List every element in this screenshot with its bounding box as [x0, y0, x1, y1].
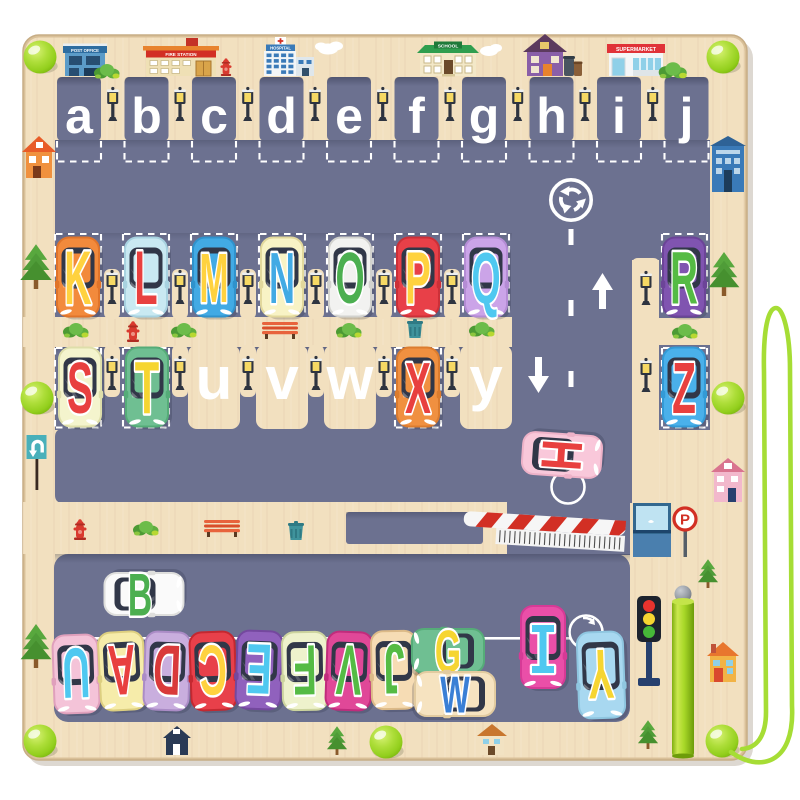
svg-text:d: d [266, 88, 297, 144]
svg-text:Y: Y [586, 633, 615, 712]
svg-text:f: f [408, 88, 425, 144]
svg-text:X: X [405, 349, 431, 429]
svg-text:a: a [65, 88, 94, 144]
svg-text:w: w [326, 345, 374, 412]
svg-text:v: v [265, 345, 299, 412]
svg-text:b: b [131, 88, 162, 144]
svg-text:H: H [529, 438, 595, 473]
svg-text:SCHOOL: SCHOOL [438, 44, 459, 50]
svg-text:F: F [293, 629, 318, 709]
svg-text:R: R [670, 238, 698, 320]
svg-text:P: P [680, 512, 690, 529]
svg-text:e: e [335, 88, 363, 144]
svg-text:j: j [679, 88, 694, 144]
svg-text:C: C [198, 629, 228, 710]
svg-text:HOSPITAL: HOSPITAL [270, 46, 291, 51]
svg-text:S: S [67, 349, 93, 429]
svg-text:T: T [135, 346, 159, 429]
svg-text:i: i [612, 88, 626, 144]
svg-text:u: u [196, 345, 233, 412]
svg-text:g: g [469, 88, 500, 144]
svg-text:B: B [128, 562, 152, 629]
svg-text:P: P [405, 238, 431, 320]
svg-text:W: W [440, 667, 470, 725]
svg-text:A: A [106, 629, 138, 710]
svg-text:V: V [335, 629, 363, 709]
svg-text:E: E [245, 628, 273, 708]
svg-text:c: c [200, 88, 228, 144]
svg-text:D: D [152, 629, 182, 710]
svg-text:Z: Z [672, 349, 696, 429]
svg-text:K: K [64, 236, 91, 321]
svg-text:SUPERMARKET: SUPERMARKET [616, 47, 657, 53]
svg-text:y: y [469, 345, 503, 412]
svg-text:Q: Q [471, 239, 500, 319]
svg-text:M: M [199, 239, 228, 317]
svg-text:J: J [383, 628, 406, 708]
svg-text:POST OFFICE: POST OFFICE [71, 48, 99, 53]
svg-text:N: N [269, 238, 295, 319]
svg-text:FIRE STATION: FIRE STATION [165, 52, 197, 57]
svg-text:h: h [536, 88, 567, 144]
svg-text:L: L [134, 236, 157, 321]
svg-text:O: O [335, 239, 364, 319]
svg-text:U: U [61, 632, 91, 713]
